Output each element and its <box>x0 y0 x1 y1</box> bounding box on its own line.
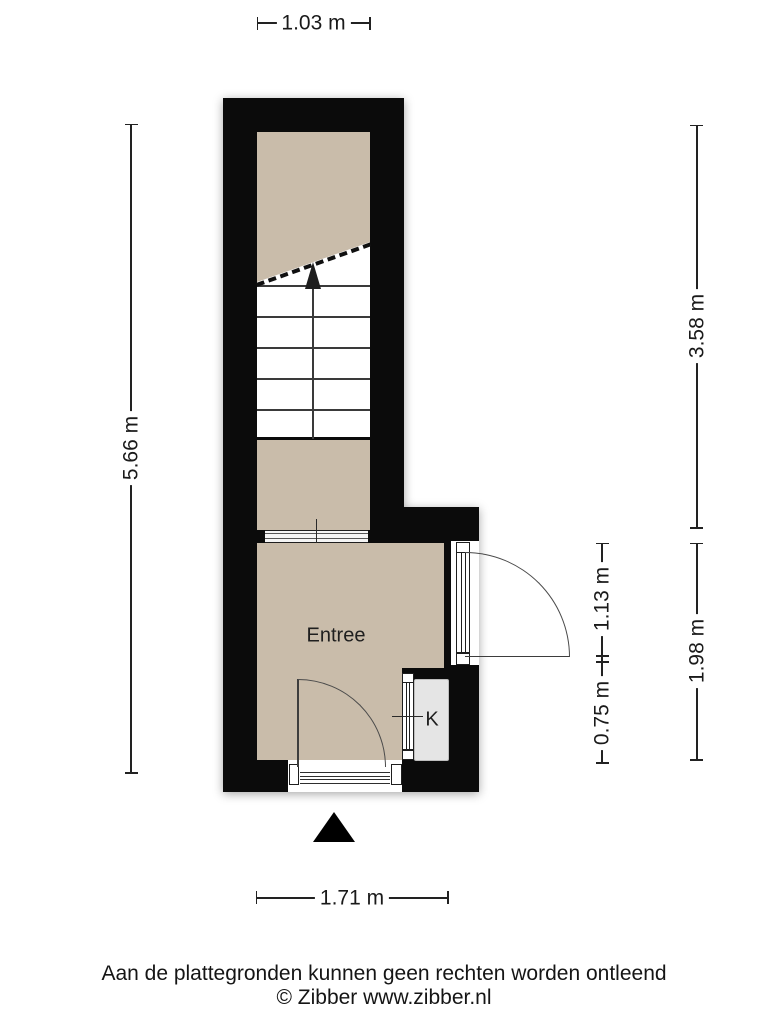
stairs-direction-line <box>312 288 314 439</box>
dimension-cap <box>125 124 138 126</box>
dimension-bottom: 1.71 m <box>256 897 448 899</box>
dimension-right-lower: 1.98 m <box>696 543 698 760</box>
dimension-left: 5.66 m <box>130 124 132 773</box>
dimension-cap <box>256 891 258 904</box>
sill-line <box>300 779 390 780</box>
building-walls <box>0 0 768 1024</box>
closet-label: K <box>425 709 438 732</box>
sill-line <box>300 776 390 777</box>
frame-line <box>403 682 413 683</box>
dimension-cap <box>690 125 703 127</box>
sill-line <box>300 783 390 784</box>
dimension-right-upper-label: 3.58 m <box>685 289 708 363</box>
footer-copyright: © Zibber www.zibber.nl <box>0 986 768 1010</box>
dimension-inner-closet-label: 0.75 m <box>591 676 614 750</box>
dimension-bottom-label: 1.71 m <box>315 886 389 909</box>
dimension-inner-door-label: 1.13 m <box>591 562 614 636</box>
dimension-cap <box>596 543 609 545</box>
frame-line <box>403 749 413 750</box>
frame-line <box>461 553 462 654</box>
dimension-cap <box>125 772 138 774</box>
dimension-cap <box>690 543 703 545</box>
footer-disclaimer: Aan de plattegronden kunnen geen rechten… <box>0 962 768 986</box>
dimension-cap <box>447 891 449 904</box>
entrance-arrow-icon <box>313 812 355 842</box>
dimension-right-upper: 3.58 m <box>696 125 698 528</box>
footer: Aan de plattegronden kunnen geen rechten… <box>0 962 768 1010</box>
dimension-cap <box>596 655 609 657</box>
dimension-left-label: 5.66 m <box>120 411 143 485</box>
dimension-cap <box>690 759 703 761</box>
sill-line <box>300 772 390 773</box>
dimension-cap <box>596 661 609 663</box>
closet-leader-line <box>392 716 423 717</box>
dimension-cap <box>690 527 703 529</box>
sill-end <box>391 764 402 786</box>
floorplan-canvas: 1.03 m Entree K <box>0 0 768 1024</box>
room-label-entree: Entree <box>307 625 366 648</box>
dimension-cap <box>596 762 609 764</box>
dimension-inner: 1.13 m 0.75 m <box>601 543 603 763</box>
dimension-right-lower-label: 1.98 m <box>685 614 708 688</box>
